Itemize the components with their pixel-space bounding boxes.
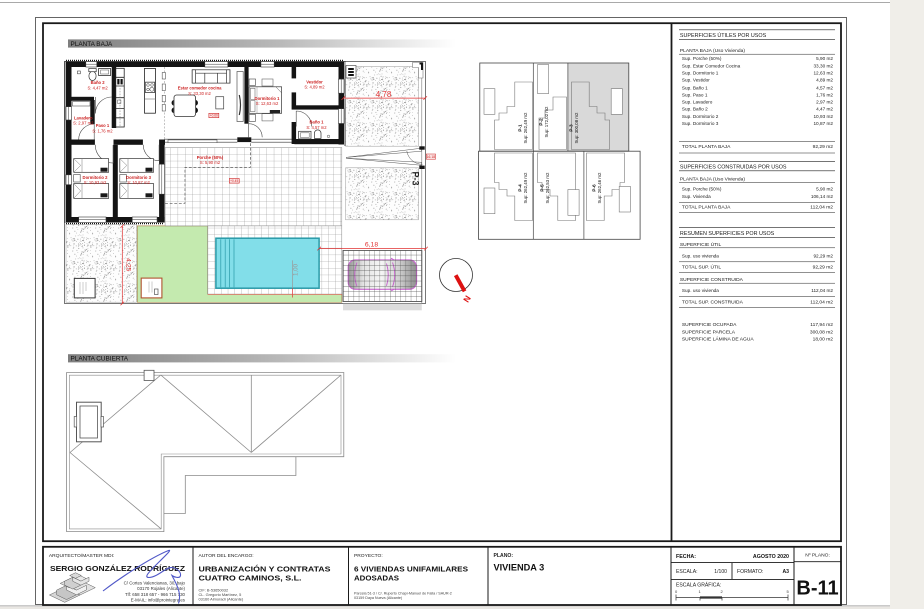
svg-text:Parcela 51-3 / C/. Ruperto Cha: Parcela 51-3 / C/. Ruperto Chapí-Manuel … — [354, 592, 452, 596]
svg-text:03159 Daya Nueva (Alicante): 03159 Daya Nueva (Alicante) — [354, 596, 402, 600]
svg-text:Baño 2: Baño 2 — [91, 80, 106, 85]
svg-text:SERGIO GONZÁLEZ RODRÍGUEZ: SERGIO GONZÁLEZ RODRÍGUEZ — [50, 564, 185, 573]
svg-text:92,29 m2: 92,29 m2 — [813, 144, 834, 150]
svg-text:300,08 m2: 300,08 m2 — [810, 329, 833, 335]
svg-text:Sup: 262,49 m2: Sup: 262,49 m2 — [523, 112, 528, 144]
svg-text:FECHA:: FECHA: — [676, 554, 696, 560]
svg-text:P-3: P-3 — [411, 171, 421, 185]
svg-text:B-11: B-11 — [796, 578, 838, 600]
svg-text:Tlf: 658 318 657 - 966 715 730: Tlf: 658 318 657 - 966 715 730 — [125, 592, 186, 597]
svg-text:AUTOR DEL ENCARGO:: AUTOR DEL ENCARGO: — [199, 553, 254, 559]
svg-text:4,47 m2: 4,47 m2 — [816, 107, 833, 112]
svg-text:Sup. Vestidor: Sup. Vestidor — [682, 78, 710, 83]
svg-text:+0.60: +0.60 — [210, 114, 218, 118]
svg-text:S: 33,30 m2: S: 33,30 m2 — [188, 91, 211, 96]
svg-text:4,25: 4,25 — [125, 258, 132, 271]
svg-text:SUPERFICIES ÚTILES POR USOS: SUPERFICIES ÚTILES POR USOS — [680, 32, 767, 39]
svg-text:PLANTA BAJA (Uso Vivienda): PLANTA BAJA (Uso Vivienda) — [680, 176, 745, 182]
svg-text:16.18: 16.18 — [427, 155, 436, 159]
svg-text:4,78: 4,78 — [376, 90, 392, 99]
svg-text:Sup. uso vivienda: Sup. uso vivienda — [682, 288, 719, 293]
svg-text:6,18: 6,18 — [365, 242, 378, 249]
svg-text:TOTAL SUP. CONSTRUIDA: TOTAL SUP. CONSTRUIDA — [682, 299, 744, 305]
svg-text:117,94 m2: 117,94 m2 — [810, 322, 833, 328]
svg-text:S: 10,93 m2: S: 10,93 m2 — [84, 180, 107, 185]
svg-text:Porche (50%): Porche (50%) — [197, 155, 224, 160]
svg-text:S: 4,89 m2: S: 4,89 m2 — [304, 85, 325, 90]
svg-text:Vestidor: Vestidor — [306, 79, 323, 84]
svg-text:S: 10,87 m2: S: 10,87 m2 — [127, 180, 150, 185]
svg-text:S: 4,47 m2: S: 4,47 m2 — [87, 85, 108, 90]
svg-text:Sup. Baño 1: Sup. Baño 1 — [682, 85, 708, 90]
svg-text:TOTAL PLANTA BAJA: TOTAL PLANTA BAJA — [682, 205, 731, 211]
svg-text:VIVIENDA 3: VIVIENDA 3 — [494, 563, 545, 573]
svg-text:AGOSTO 2020: AGOSTO 2020 — [753, 554, 789, 560]
svg-text:SUPERFICIE CONSTRUIDA: SUPERFICIE CONSTRUIDA — [680, 277, 744, 283]
svg-text:Nº PLANO:: Nº PLANO: — [805, 553, 830, 559]
svg-text:SUPERFICIE ÚTIL: SUPERFICIE ÚTIL — [680, 241, 722, 248]
svg-text:A3: A3 — [782, 569, 789, 575]
svg-text:2,97 m2: 2,97 m2 — [816, 100, 833, 105]
svg-text:SUPERFICIE PARCELA: SUPERFICIE PARCELA — [682, 329, 736, 335]
svg-text:33,30 m2: 33,30 m2 — [813, 63, 833, 68]
svg-text:S: 4,57 m2: S: 4,57 m2 — [306, 125, 327, 130]
svg-text:4,89 m2: 4,89 m2 — [816, 78, 833, 83]
svg-text:1,76 m2: 1,76 m2 — [816, 92, 833, 97]
svg-text:106,14 m2: 106,14 m2 — [811, 194, 834, 199]
svg-text:Lavadero: Lavadero — [74, 115, 93, 120]
svg-text:1,00: 1,00 — [293, 263, 300, 276]
svg-text:Sup: 262,53 m2: Sup: 262,53 m2 — [545, 172, 550, 204]
svg-text:Baño 1: Baño 1 — [310, 120, 325, 125]
svg-text:SUPERFICIES CONSTRUIDAS POR US: SUPERFICIES CONSTRUIDAS POR USOS — [680, 164, 787, 170]
svg-text:5,90 m2: 5,90 m2 — [816, 186, 833, 191]
svg-text:6 VIVIENDAS UNIFAMILARES: 6 VIVIENDAS UNIFAMILARES — [354, 565, 468, 574]
svg-text:FORMATO:: FORMATO: — [737, 569, 763, 575]
svg-text:PLANTA BAJA (Uso Vivienda): PLANTA BAJA (Uso Vivienda) — [680, 48, 745, 54]
svg-text:Dormitorio 2: Dormitorio 2 — [83, 175, 109, 180]
svg-text:CUATRO CAMINOS, S.L.: CUATRO CAMINOS, S.L. — [199, 574, 302, 583]
svg-text:ESCALA:: ESCALA: — [676, 569, 698, 575]
svg-text:112,04 m2: 112,04 m2 — [810, 205, 833, 211]
svg-text:TOTAL PLANTA BAJA: TOTAL PLANTA BAJA — [682, 144, 731, 150]
svg-text:PROYECTO:: PROYECTO: — [354, 553, 383, 559]
svg-text:03160 Almoradí (Alicante): 03160 Almoradí (Alicante) — [199, 597, 244, 602]
svg-text:Estar comedor cocina: Estar comedor cocina — [178, 86, 222, 91]
svg-text:Sup. uso vivienda: Sup. uso vivienda — [682, 254, 719, 259]
svg-text:Sup: 300,08 m2: Sup: 300,08 m2 — [574, 112, 579, 144]
svg-text:SUPERFICIE OCUPADA: SUPERFICIE OCUPADA — [682, 322, 737, 328]
svg-text:S: 12,63 m2: S: 12,63 m2 — [256, 101, 279, 106]
svg-text:ADOSADAS: ADOSADAS — [354, 574, 399, 583]
svg-text:Dormitorio 3: Dormitorio 3 — [126, 175, 152, 180]
svg-text:1/100: 1/100 — [714, 569, 727, 575]
svg-text:Sup. Dormitorio 2: Sup. Dormitorio 2 — [682, 114, 719, 119]
svg-text:Sup. Paso 1: Sup. Paso 1 — [682, 92, 708, 97]
svg-text:PLANTA BAJA: PLANTA BAJA — [71, 41, 114, 48]
svg-text:Sup: 262,46 m2: Sup: 262,46 m2 — [597, 172, 602, 204]
svg-text:18,00 m2: 18,00 m2 — [813, 337, 834, 343]
svg-text:Sup. Baño 2: Sup. Baño 2 — [682, 107, 708, 112]
svg-text:Sup. Porche (50%): Sup. Porche (50%) — [682, 56, 722, 61]
svg-text:Paso 1: Paso 1 — [96, 123, 110, 128]
svg-text:SUPERFICIE LÁMINA DE AGUA: SUPERFICIE LÁMINA DE AGUA — [682, 336, 754, 343]
svg-text:Sup: 172,02 m2: Sup: 172,02 m2 — [544, 106, 549, 138]
svg-text:Sup. Dormitorio 3: Sup. Dormitorio 3 — [682, 121, 719, 126]
svg-text:112,04 m2: 112,04 m2 — [811, 288, 833, 293]
svg-text:S: 2,97 m2: S: 2,97 m2 — [73, 121, 94, 126]
svg-text:S: 1,76 m2: S: 1,76 m2 — [92, 128, 113, 133]
svg-text:TOTAL SUP. ÚTIL: TOTAL SUP. ÚTIL — [682, 264, 722, 271]
svg-text:RESUMEN SUPERFICIES POR USOS: RESUMEN SUPERFICIES POR USOS — [680, 231, 775, 237]
svg-text:10,87 m2: 10,87 m2 — [813, 121, 833, 126]
svg-text:PLANO:: PLANO: — [494, 553, 514, 559]
svg-text:PLANTA CUBIERTA: PLANTA CUBIERTA — [71, 356, 129, 363]
svg-text:ARQUITECTO/MASTER MDI:: ARQUITECTO/MASTER MDI: — [49, 553, 114, 559]
svg-text:Sup. Porche (50%): Sup. Porche (50%) — [682, 186, 722, 191]
svg-text:92,29 m2: 92,29 m2 — [813, 265, 834, 271]
svg-text:+0.45: +0.45 — [230, 179, 238, 183]
svg-text:ESCALA GRÁFICA:: ESCALA GRÁFICA: — [676, 582, 721, 589]
svg-text:URBANIZACIÓN Y CONTRATAS: URBANIZACIÓN Y CONTRATAS — [199, 565, 331, 574]
svg-text:112,04 m2: 112,04 m2 — [810, 299, 833, 305]
svg-text:Dormitorio 1: Dormitorio 1 — [255, 96, 281, 101]
svg-text:Sup. Lavadero: Sup. Lavadero — [682, 100, 713, 105]
svg-text:10,93 m2: 10,93 m2 — [813, 114, 833, 119]
svg-text:Sup. Dormitorio 1: Sup. Dormitorio 1 — [682, 71, 719, 76]
svg-text:92,29 m2: 92,29 m2 — [813, 254, 833, 259]
svg-text:5,90 m2: 5,90 m2 — [816, 56, 833, 61]
svg-text:Sup. Vivienda: Sup. Vivienda — [682, 194, 711, 199]
svg-text:Sup: 262,49 m2: Sup: 262,49 m2 — [523, 172, 528, 204]
svg-text:E-MAIL: info@prointegra.es: E-MAIL: info@prointegra.es — [131, 598, 186, 603]
svg-text:12,63 m2: 12,63 m2 — [813, 71, 833, 76]
svg-text:S: 5,90 m2: S: 5,90 m2 — [200, 160, 221, 165]
svg-text:4,57 m2: 4,57 m2 — [816, 85, 833, 90]
svg-text:Sup. Estar Comedor Cocina: Sup. Estar Comedor Cocina — [682, 63, 741, 68]
